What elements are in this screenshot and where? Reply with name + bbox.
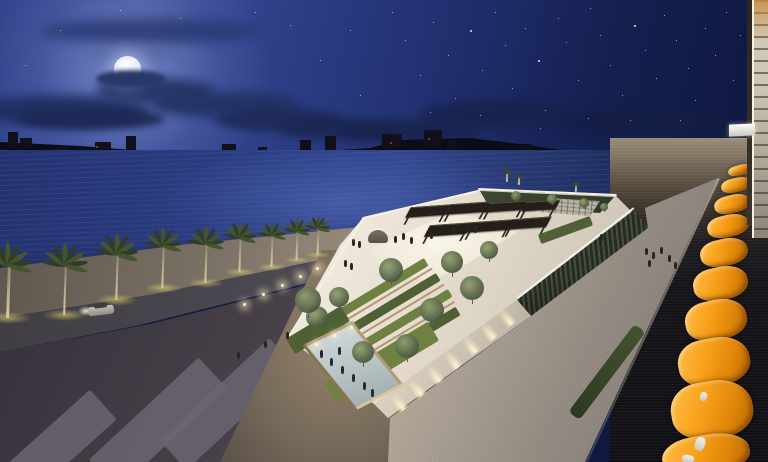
lit-sign	[729, 123, 755, 136]
pedestrian	[352, 239, 355, 246]
star	[470, 30, 472, 32]
tree-trunk	[472, 298, 473, 304]
palm-trunk	[161, 246, 164, 288]
palm-trunk	[239, 237, 242, 272]
pedestrian	[402, 233, 405, 240]
tree	[395, 334, 419, 358]
pedestrian	[668, 255, 671, 262]
cloud	[15, 108, 165, 130]
star	[645, 50, 646, 51]
pedestrian	[648, 260, 651, 267]
tree	[329, 287, 349, 307]
pool-figure	[330, 358, 333, 366]
pool-figure	[363, 382, 366, 390]
star	[733, 80, 734, 81]
star	[538, 60, 540, 62]
pedestrian	[652, 252, 655, 259]
pedestrian	[394, 236, 397, 243]
palm-trunk	[115, 254, 119, 300]
star	[482, 70, 483, 71]
cloud	[40, 18, 260, 44]
palm-tree	[500, 168, 512, 183]
star	[610, 65, 611, 66]
tree-trunk	[452, 271, 453, 277]
skyline-building	[325, 136, 336, 150]
tree-trunk	[552, 202, 553, 205]
star	[360, 95, 361, 96]
pool-figure	[341, 366, 344, 374]
star	[480, 115, 481, 116]
star	[430, 112, 431, 113]
star	[180, 18, 181, 19]
tree	[420, 298, 444, 322]
cloud-over-moon	[96, 70, 166, 88]
star	[676, 40, 677, 41]
palm-frond	[162, 244, 183, 253]
skyline-building	[20, 138, 32, 148]
architectural-night-render	[0, 0, 768, 462]
star	[525, 28, 526, 29]
tree-trunk	[432, 320, 433, 326]
pedestrian	[237, 352, 240, 359]
palm-trunk	[317, 228, 319, 255]
star	[420, 75, 421, 76]
palm-tree	[302, 216, 334, 256]
palm-tree	[0, 242, 40, 320]
star	[634, 25, 636, 27]
star	[455, 98, 456, 99]
star	[350, 30, 351, 31]
pedestrian	[358, 241, 361, 248]
tree	[295, 287, 321, 313]
star	[740, 35, 741, 36]
pool-figure	[371, 389, 374, 397]
foreground-structure	[752, 0, 768, 238]
star	[680, 120, 681, 121]
star	[392, 12, 393, 13]
palm-frond	[506, 171, 511, 174]
palm-trunk	[296, 231, 299, 260]
window-light	[390, 142, 392, 144]
star	[622, 95, 623, 96]
skyline-building	[8, 132, 18, 148]
palm-trunk	[6, 265, 10, 318]
pedestrian	[350, 263, 353, 270]
tree-trunk	[317, 326, 318, 332]
pedestrian	[600, 234, 603, 241]
palm-tree	[513, 172, 524, 185]
window-light	[96, 146, 98, 148]
star	[566, 42, 567, 43]
tree-trunk	[407, 356, 408, 362]
pool-light	[333, 334, 336, 337]
star	[688, 68, 689, 69]
star	[540, 128, 541, 129]
tree	[379, 258, 403, 282]
palm-tree	[570, 180, 580, 192]
tree-trunk	[516, 199, 517, 202]
star	[664, 15, 665, 16]
pedestrian	[410, 237, 413, 244]
skyline-building	[382, 134, 402, 148]
palm-frond	[518, 175, 523, 178]
palm-tree	[138, 228, 188, 290]
skyline-building	[447, 140, 457, 150]
tree	[441, 251, 463, 273]
palm-trunk	[205, 244, 208, 283]
star	[60, 30, 61, 31]
star	[656, 78, 657, 79]
star	[590, 8, 591, 9]
cloud	[80, 45, 200, 63]
path-light	[262, 293, 265, 296]
star	[695, 100, 696, 101]
star	[545, 110, 546, 111]
star	[290, 25, 291, 26]
star	[25, 65, 26, 66]
pool-figure	[320, 350, 323, 358]
pedestrian	[452, 226, 455, 233]
star	[495, 12, 496, 13]
path-light	[316, 267, 319, 270]
window-light	[428, 138, 430, 140]
pedestrian	[645, 248, 648, 255]
tree-trunk	[363, 361, 364, 367]
pedestrian	[264, 341, 267, 348]
star	[433, 22, 434, 23]
pedestrian	[474, 226, 477, 233]
star	[705, 28, 706, 29]
star	[600, 35, 601, 36]
tree-trunk	[339, 305, 340, 310]
pool-figure	[352, 374, 355, 382]
star	[505, 45, 506, 46]
tree-trunk	[604, 209, 605, 212]
pool-light	[315, 343, 318, 346]
star	[405, 40, 406, 41]
star	[320, 60, 321, 61]
palm-frond	[575, 183, 579, 186]
pedestrian	[286, 332, 289, 339]
tree-trunk	[489, 257, 490, 262]
pedestrian	[467, 223, 470, 230]
star	[630, 120, 631, 121]
cloud	[420, 100, 580, 128]
star	[448, 55, 449, 56]
star	[255, 12, 256, 13]
star	[558, 18, 559, 19]
star	[588, 118, 589, 119]
palm-tree	[89, 234, 144, 302]
star	[726, 12, 727, 13]
pedestrian	[674, 262, 677, 269]
skyline-building	[424, 130, 442, 148]
pedestrian	[660, 247, 663, 254]
palm-trunk	[63, 265, 67, 315]
entrance-arch	[368, 228, 388, 243]
star	[512, 88, 513, 89]
path-light	[243, 303, 246, 306]
tree-trunk	[308, 311, 309, 318]
star	[578, 80, 579, 81]
skyline-building	[126, 136, 136, 152]
tree-trunk	[391, 280, 392, 286]
tree	[460, 276, 484, 300]
path-light	[299, 275, 302, 278]
tree	[352, 341, 374, 363]
pool-figure	[338, 347, 341, 355]
star	[715, 55, 716, 56]
pedestrian	[430, 232, 433, 239]
pedestrian	[344, 260, 347, 267]
star	[120, 10, 121, 11]
path-light	[281, 284, 284, 287]
pool-light	[350, 326, 353, 329]
tree-trunk	[584, 206, 585, 209]
